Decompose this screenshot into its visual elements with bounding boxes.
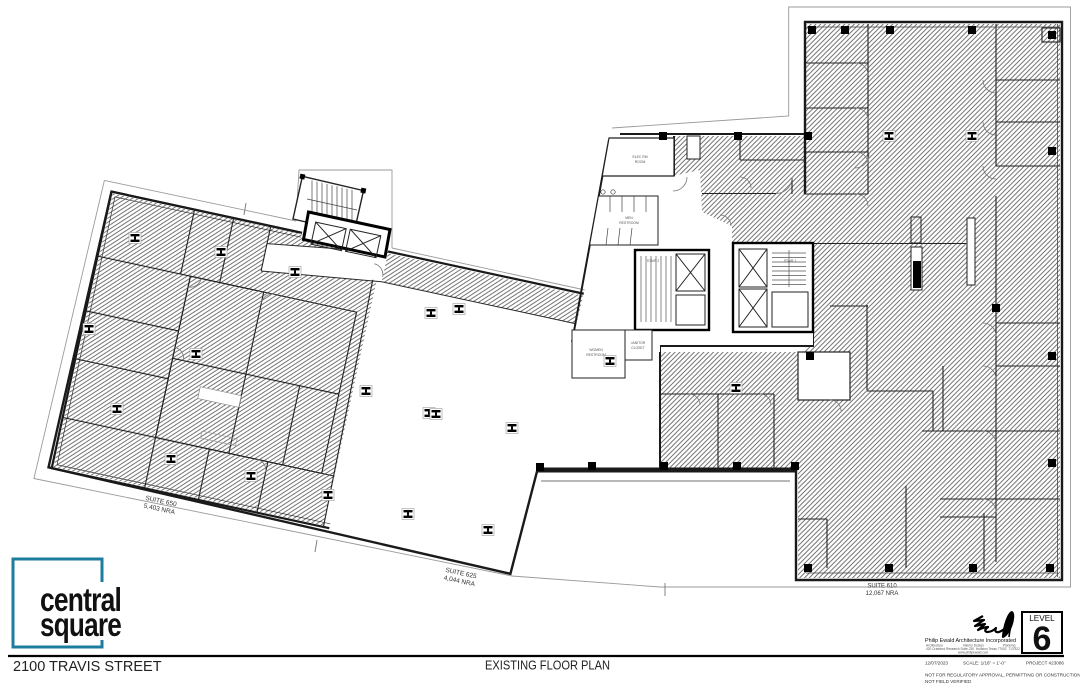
svg-text:EXISTING FLOOR PLAN: EXISTING FLOOR PLAN xyxy=(485,659,610,673)
svg-text:STAIR 2: STAIR 2 xyxy=(647,259,660,263)
svg-text:ELEC RM: ELEC RM xyxy=(632,155,647,159)
svg-text:www.philipewald.com: www.philipewald.com xyxy=(958,651,989,655)
svg-text:STAIR 1: STAIR 1 xyxy=(784,259,797,263)
svg-text:SCALE: 1/16" = 1'-0": SCALE: 1/16" = 1'-0" xyxy=(963,661,1006,666)
svg-text:JANITOR: JANITOR xyxy=(631,341,646,345)
svg-text:square: square xyxy=(40,606,122,643)
svg-text:WOMEN: WOMEN xyxy=(589,348,603,352)
svg-text:RESTROOM: RESTROOM xyxy=(619,221,639,225)
svg-text:12/07/2023: 12/07/2023 xyxy=(925,661,948,666)
svg-text:2100 TRAVIS STREET: 2100 TRAVIS STREET xyxy=(13,659,162,675)
svg-text:MEN: MEN xyxy=(625,216,633,220)
svg-text:12,067 NRA: 12,067 NRA xyxy=(866,591,899,597)
svg-text:RESTROOM: RESTROOM xyxy=(586,353,606,357)
svg-text:PROJECT #23086: PROJECT #23086 xyxy=(1026,661,1064,666)
svg-text:6: 6 xyxy=(1033,620,1052,658)
svg-text:NOT FOR REGULATORY APPROVAL, P: NOT FOR REGULATORY APPROVAL, PERMITTING … xyxy=(925,673,1080,678)
svg-text:ROOM: ROOM xyxy=(635,160,646,164)
svg-text:SUITE 610: SUITE 610 xyxy=(867,584,897,590)
svg-text:NOT FIELD VERIFIED: NOT FIELD VERIFIED xyxy=(925,679,972,684)
svg-text:CLOSET: CLOSET xyxy=(631,346,645,350)
